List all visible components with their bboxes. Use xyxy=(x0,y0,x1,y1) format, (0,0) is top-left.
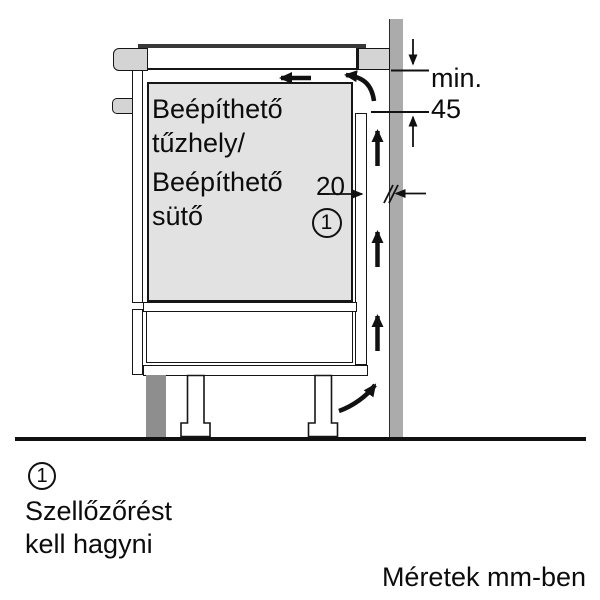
airflow-curve-bottom-icon xyxy=(339,385,375,411)
appliance-label-line2: tűzhely/ xyxy=(152,126,283,160)
oven-door-handle xyxy=(112,98,133,114)
legend-note-line1: Szellőzőrést xyxy=(25,495,172,528)
legend-callout-number: 1 xyxy=(36,466,47,486)
installation-diagram: Beépíthető tűzhely/ Beépíthető sütő min.… xyxy=(0,0,600,600)
dimension-min-value: 45 xyxy=(431,94,482,125)
units-note: Méretek mm-ben xyxy=(382,562,586,593)
drawer-compartment xyxy=(146,311,353,363)
oven-door-front xyxy=(132,70,143,303)
legend-callout-circle: 1 xyxy=(28,462,56,490)
cabinet-leg xyxy=(309,376,338,437)
cabinet-bottom-rail xyxy=(143,365,368,376)
callout-1-marker: 1 xyxy=(312,208,342,238)
appliance-label-line1: Beépíthető xyxy=(152,92,283,126)
floor-line xyxy=(15,437,586,441)
dimension-min-45: min. 45 xyxy=(431,63,482,125)
legend-note: Szellőzőrést kell hagyni xyxy=(25,495,172,561)
dimension-min-label: min. xyxy=(431,63,482,94)
worktop xyxy=(140,48,358,70)
appliance-label-top: Beépíthető tűzhely/ xyxy=(152,92,283,160)
appliance-label-bottom: Beépíthető sütő xyxy=(152,165,283,233)
dimension-gap-20: 20 xyxy=(316,171,345,202)
appliance-label-line4: sütő xyxy=(152,199,283,233)
cabinet-side-panel xyxy=(355,113,367,365)
legend-note-line2: kell hagyni xyxy=(25,528,172,561)
callout-1-number: 1 xyxy=(321,212,333,233)
plinth xyxy=(146,375,166,437)
hob-front-trim xyxy=(113,48,148,71)
drawer-front xyxy=(132,309,143,375)
cabinet-leg xyxy=(181,376,210,437)
worktop-spacer-block xyxy=(358,48,390,70)
wall xyxy=(389,19,403,437)
appliance-label-line3: Beépíthető xyxy=(152,165,283,199)
